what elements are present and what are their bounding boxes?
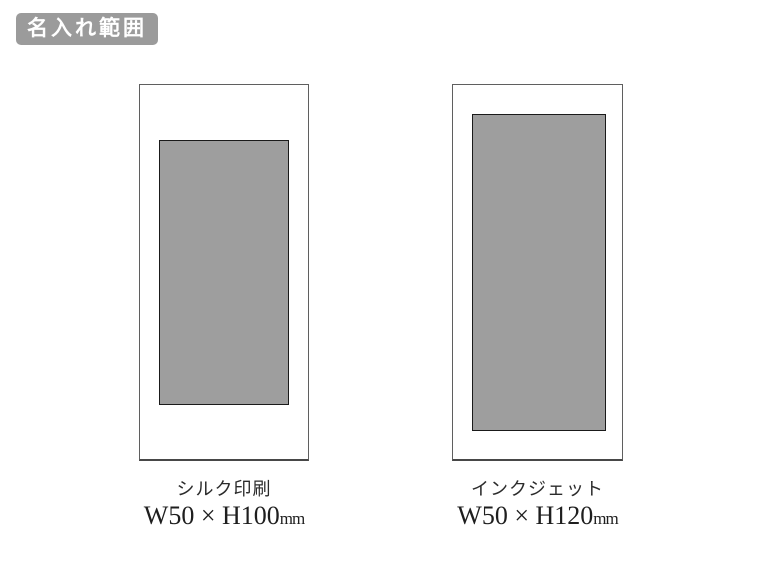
size-label: W50 × H100mm [139, 502, 309, 531]
imprint-range-badge: 名入れ範囲 [16, 13, 158, 45]
method-label: インクジェット [452, 480, 623, 500]
method-label: シルク印刷 [139, 480, 309, 500]
size-unit: mm [593, 509, 617, 528]
size-label: W50 × H120mm [452, 502, 623, 531]
size-value: W50 × H100 [144, 501, 280, 530]
product-outline [139, 84, 309, 461]
size-value: W50 × H120 [457, 501, 593, 530]
product-outline [452, 84, 623, 461]
print-area [159, 140, 289, 405]
imprint-range-diagram: 名入れ範囲 シルク印刷 W50 × H100mm インクジェット W50 × H… [0, 0, 760, 570]
caption: シルク印刷 W50 × H100mm [139, 480, 309, 530]
print-area [472, 114, 606, 431]
caption: インクジェット W50 × H120mm [452, 480, 623, 530]
figure-silk-print: シルク印刷 W50 × H100mm [139, 84, 309, 530]
figure-inkjet: インクジェット W50 × H120mm [452, 84, 623, 530]
size-unit: mm [280, 509, 304, 528]
